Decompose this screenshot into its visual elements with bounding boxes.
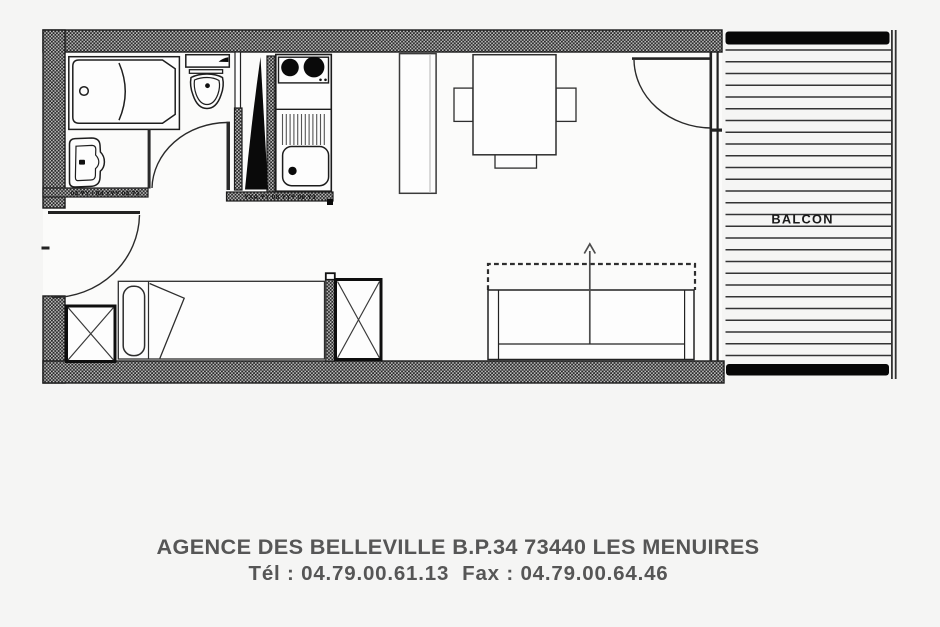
svg-text:AGENCE DES BELLEVILLE B.P.34 7: AGENCE DES BELLEVILLE B.P.34 73440 LES M…: [157, 534, 760, 559]
svg-text:Tél : 04.79.00.61.13 Fax : 04: Tél : 04.79.00.61.13 Fax : 04.79.00.64.4…: [249, 562, 669, 585]
svg-text:BALCON: BALCON: [771, 212, 834, 227]
svg-text:04 YY / 04 YYY 04 73: 04 YY / 04 YYY 04 73: [71, 191, 140, 198]
svg-text:YXA.YY 08 YYY 08 Y3: YXA.YY 08 YYY 08 Y3: [244, 194, 316, 201]
